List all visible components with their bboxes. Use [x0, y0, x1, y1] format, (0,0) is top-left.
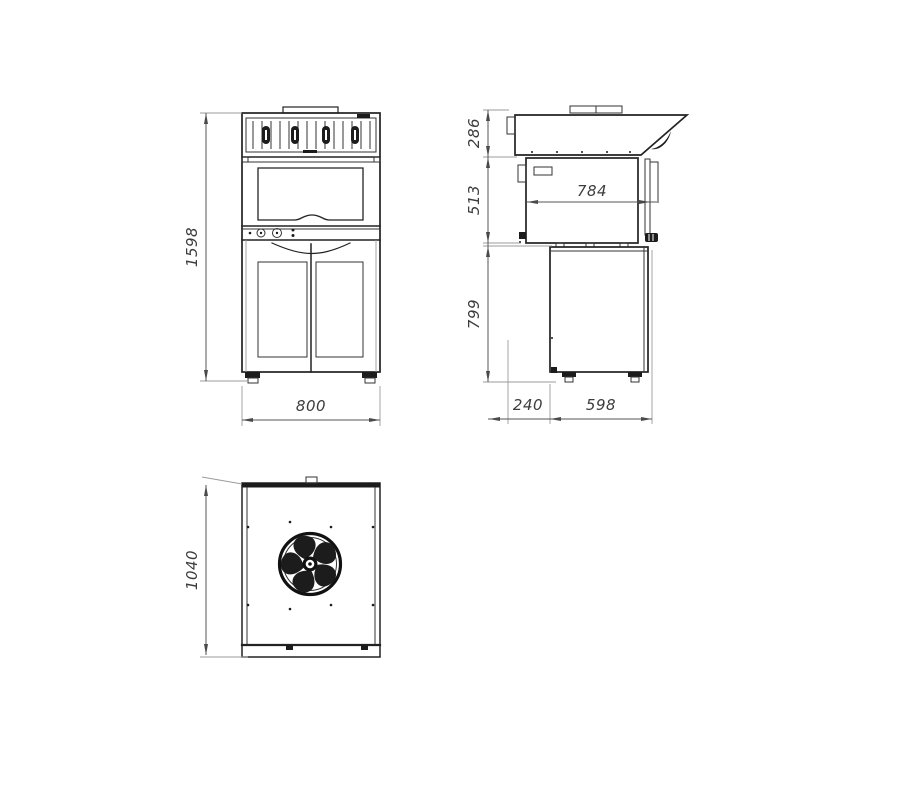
dim-label-1040: 1040: [183, 550, 201, 590]
pilot-lamp: [249, 232, 252, 235]
dim-front-width: 800: [242, 386, 380, 426]
technical-drawing-canvas: 1598 800 286 513 799: [0, 0, 900, 788]
door-panel-left: [258, 262, 307, 357]
burner-knobs: [262, 126, 359, 144]
top-view: [242, 477, 380, 657]
button-top: [292, 229, 295, 232]
side-feet: [562, 372, 642, 382]
door-handle-profile: [650, 162, 658, 203]
oven-body-side: [526, 158, 638, 243]
cabinet-body-side: [550, 247, 648, 372]
chimney-side-a: [570, 106, 596, 113]
dim-side-heights: 286 513 799: [465, 110, 556, 382]
top-front-band: [242, 483, 380, 488]
lower-bracket: [519, 232, 526, 239]
dim-label-799: 799: [465, 299, 483, 329]
hood-latch-hook: [651, 131, 671, 149]
grill-latch: [303, 150, 317, 153]
oven-door-edge: [645, 159, 650, 235]
chimney-side-b: [596, 106, 622, 113]
fan-icon: [276, 533, 340, 597]
door-handle-right: [311, 243, 350, 254]
dim-side-depths: 240 598: [488, 250, 652, 424]
front-view: [242, 107, 380, 383]
dim-label-240: 240: [513, 396, 543, 414]
hood-rivets: [531, 151, 631, 153]
front-feet: [245, 372, 377, 383]
dim-label-286: 286: [465, 118, 483, 148]
control-panel: [242, 226, 380, 240]
dimensional-drawing: 1598 800 286 513 799: [0, 0, 900, 788]
hood-side-tab: [507, 117, 515, 134]
dim-front-height: 1598: [183, 113, 248, 381]
dim-label-784: 784: [577, 182, 607, 200]
dim-label-513: 513: [465, 185, 483, 215]
oven-window: [258, 168, 363, 220]
fan-hub: [308, 562, 312, 566]
chimney-stub: [283, 107, 338, 113]
control-knob-right: [273, 229, 282, 238]
dim-label-800: 800: [296, 397, 326, 415]
door-panel-right: [316, 262, 363, 357]
dim-top-depth: 1040: [183, 477, 248, 657]
side-view: [507, 106, 687, 382]
cabinet-corner-block: [551, 367, 557, 373]
door-knob-side: [645, 233, 658, 242]
hood: [515, 115, 687, 155]
button-bottom: [292, 234, 295, 237]
dim-label-598: 598: [586, 396, 616, 414]
hinge-bracket: [518, 165, 526, 182]
rating-plate: [534, 167, 552, 175]
grill-section: [246, 114, 376, 153]
shelf-band: [242, 157, 380, 162]
cabinet-front: [246, 240, 376, 372]
door-handle-left: [272, 243, 311, 254]
grill-badge: [357, 114, 370, 118]
dim-label-1598: 1598: [183, 227, 201, 267]
top-tab: [306, 477, 317, 483]
control-knob-left: [257, 229, 265, 237]
cabinet-side: [550, 247, 648, 382]
